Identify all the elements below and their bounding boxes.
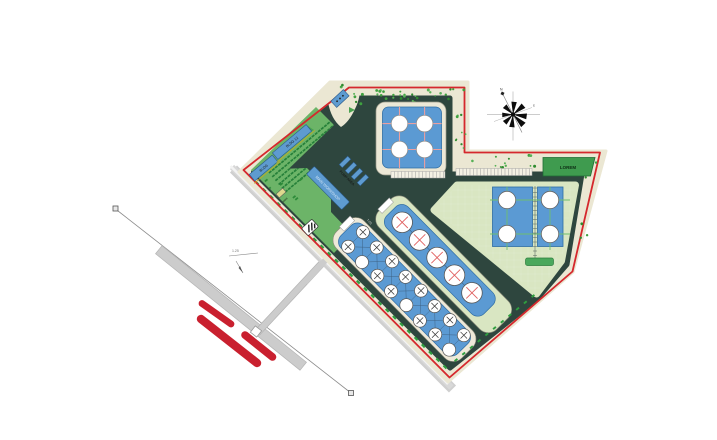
svg-text:LOREM: LOREM (560, 165, 577, 170)
svg-text:1.25: 1.25 (232, 249, 239, 253)
svg-text:E: E (533, 104, 535, 108)
